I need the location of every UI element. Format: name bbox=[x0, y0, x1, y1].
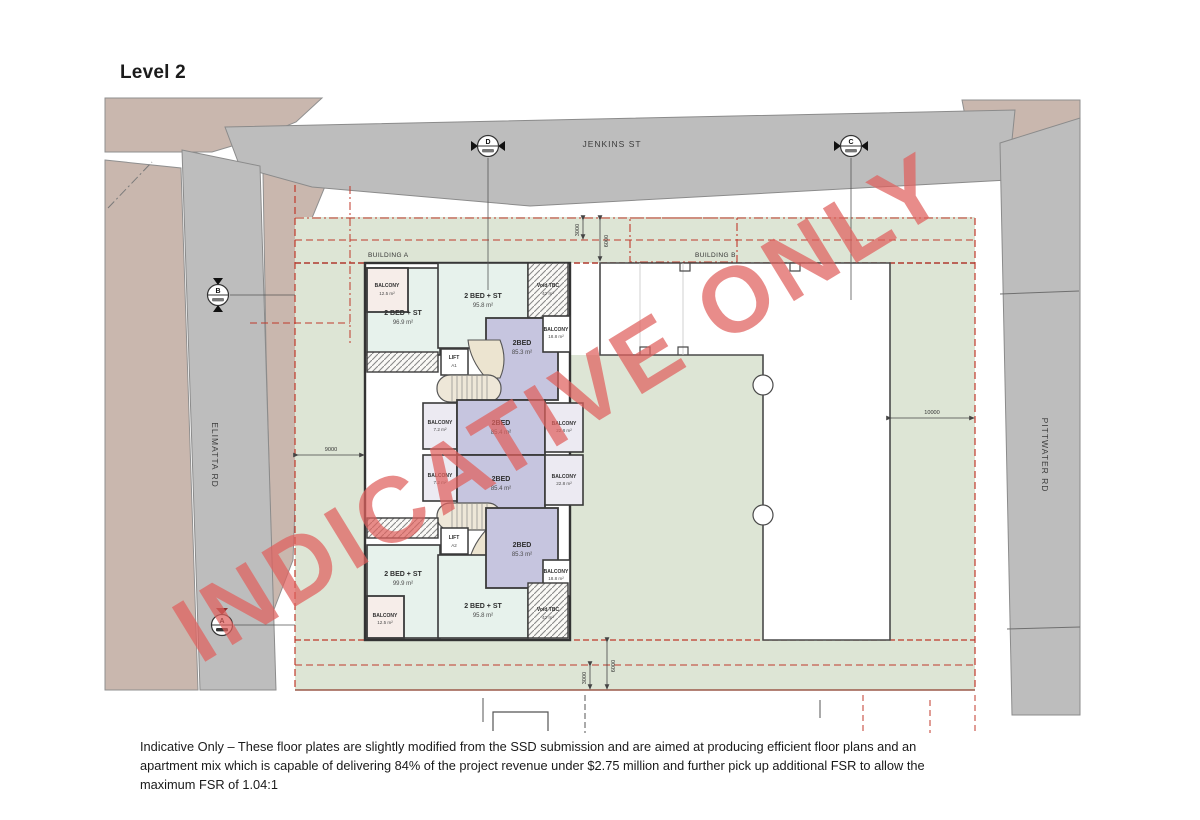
label-lift-a1-name: LIFT bbox=[449, 355, 460, 361]
structure-outline-below bbox=[493, 712, 548, 731]
building-b-bay-1 bbox=[753, 375, 773, 395]
label-apt-tl-name: 2 BED + ST bbox=[384, 310, 422, 317]
label-2bed-bot-area: 85.3 m² bbox=[512, 552, 532, 558]
grid-c-subtext bbox=[845, 149, 857, 152]
label-bal-br-name: BALCONY bbox=[544, 569, 569, 575]
hatch-strip-top bbox=[367, 352, 438, 372]
label-bal-mr2-area: 22.8 m² bbox=[556, 481, 572, 486]
grid-b-letter: B bbox=[215, 288, 220, 295]
label-apt-bm-name: 2 BED + ST bbox=[464, 603, 502, 610]
floor-plan-page: Level 2 JENKINS ST ELI bbox=[0, 0, 1200, 820]
label-bal-tr-name: BALCONY bbox=[544, 327, 569, 333]
label-void-tr-area: 42 m² bbox=[542, 291, 554, 296]
road-label-jenkins: JENKINS ST bbox=[582, 139, 641, 149]
label-bal-tl-name: BALCONY bbox=[375, 283, 400, 289]
label-apt-tl-area: 96.9 m² bbox=[393, 320, 413, 326]
label-void-br-area: 42 m² bbox=[542, 615, 554, 620]
grid-c-letter: C bbox=[848, 139, 853, 146]
label-2bed-top-area: 85.3 m² bbox=[512, 350, 532, 356]
grid-b-subtext bbox=[212, 298, 224, 301]
grid-d-subtext bbox=[482, 149, 494, 152]
building-a-label: BUILDING A bbox=[368, 252, 409, 259]
label-void-tr-name: Void TBC bbox=[537, 283, 560, 289]
dim-top-3000: 3000 bbox=[575, 224, 581, 236]
label-apt-tm-area: 95.8 m² bbox=[473, 303, 493, 309]
road-pittwater-rd bbox=[1000, 118, 1080, 715]
dim-left-9000: 9000 bbox=[325, 447, 337, 453]
label-2bed-bot-name: 2BED bbox=[513, 542, 532, 549]
road-label-elimatta: ELIMATTA RD bbox=[210, 422, 220, 487]
label-apt-tm-name: 2 BED + ST bbox=[464, 293, 502, 300]
dim-bottom-3000: 3000 bbox=[582, 672, 588, 684]
label-bal-mr2-name: BALCONY bbox=[552, 474, 577, 480]
label-2bed-top-name: 2BED bbox=[513, 340, 532, 347]
grid-d-letter: D bbox=[485, 139, 490, 146]
label-apt-bm-area: 95.8 m² bbox=[473, 613, 493, 619]
caption-text: Indicative Only – These floor plates are… bbox=[140, 737, 948, 795]
label-lift-a1-id: A1 bbox=[451, 363, 457, 368]
label-lift-a2-name: LIFT bbox=[449, 535, 460, 541]
road-label-pittwater: PITTWATER RD bbox=[1040, 418, 1050, 493]
dim-bottom-6000: 6000 bbox=[611, 660, 617, 672]
label-bal-tl-area: 12.5 m² bbox=[379, 291, 395, 296]
label-void-br-name: Void TBC bbox=[537, 607, 560, 613]
label-lift-a2-id: A2 bbox=[451, 543, 457, 548]
label-bal-tr-area: 18.8 m² bbox=[548, 334, 564, 339]
label-bal-bl-area: 12.5 m² bbox=[377, 620, 393, 625]
dim-top-6000: 6000 bbox=[604, 235, 610, 247]
site-plan-drawing: JENKINS ST ELIMATTA RD PITTWATER RD bbox=[0, 0, 1200, 820]
label-apt-bl-name: 2 BED + ST bbox=[384, 571, 422, 578]
lift-a1 bbox=[441, 349, 468, 375]
dim-right-10000: 10000 bbox=[924, 410, 940, 416]
label-bal-bl-name: BALCONY bbox=[373, 613, 398, 619]
survey-marks bbox=[483, 695, 820, 733]
balcony-top-left bbox=[367, 268, 408, 312]
label-bal-br-area: 18.8 m² bbox=[548, 576, 564, 581]
label-apt-bl-area: 99.9 m² bbox=[393, 581, 413, 587]
building-b-bay-2 bbox=[753, 505, 773, 525]
green-right-column bbox=[890, 263, 975, 640]
